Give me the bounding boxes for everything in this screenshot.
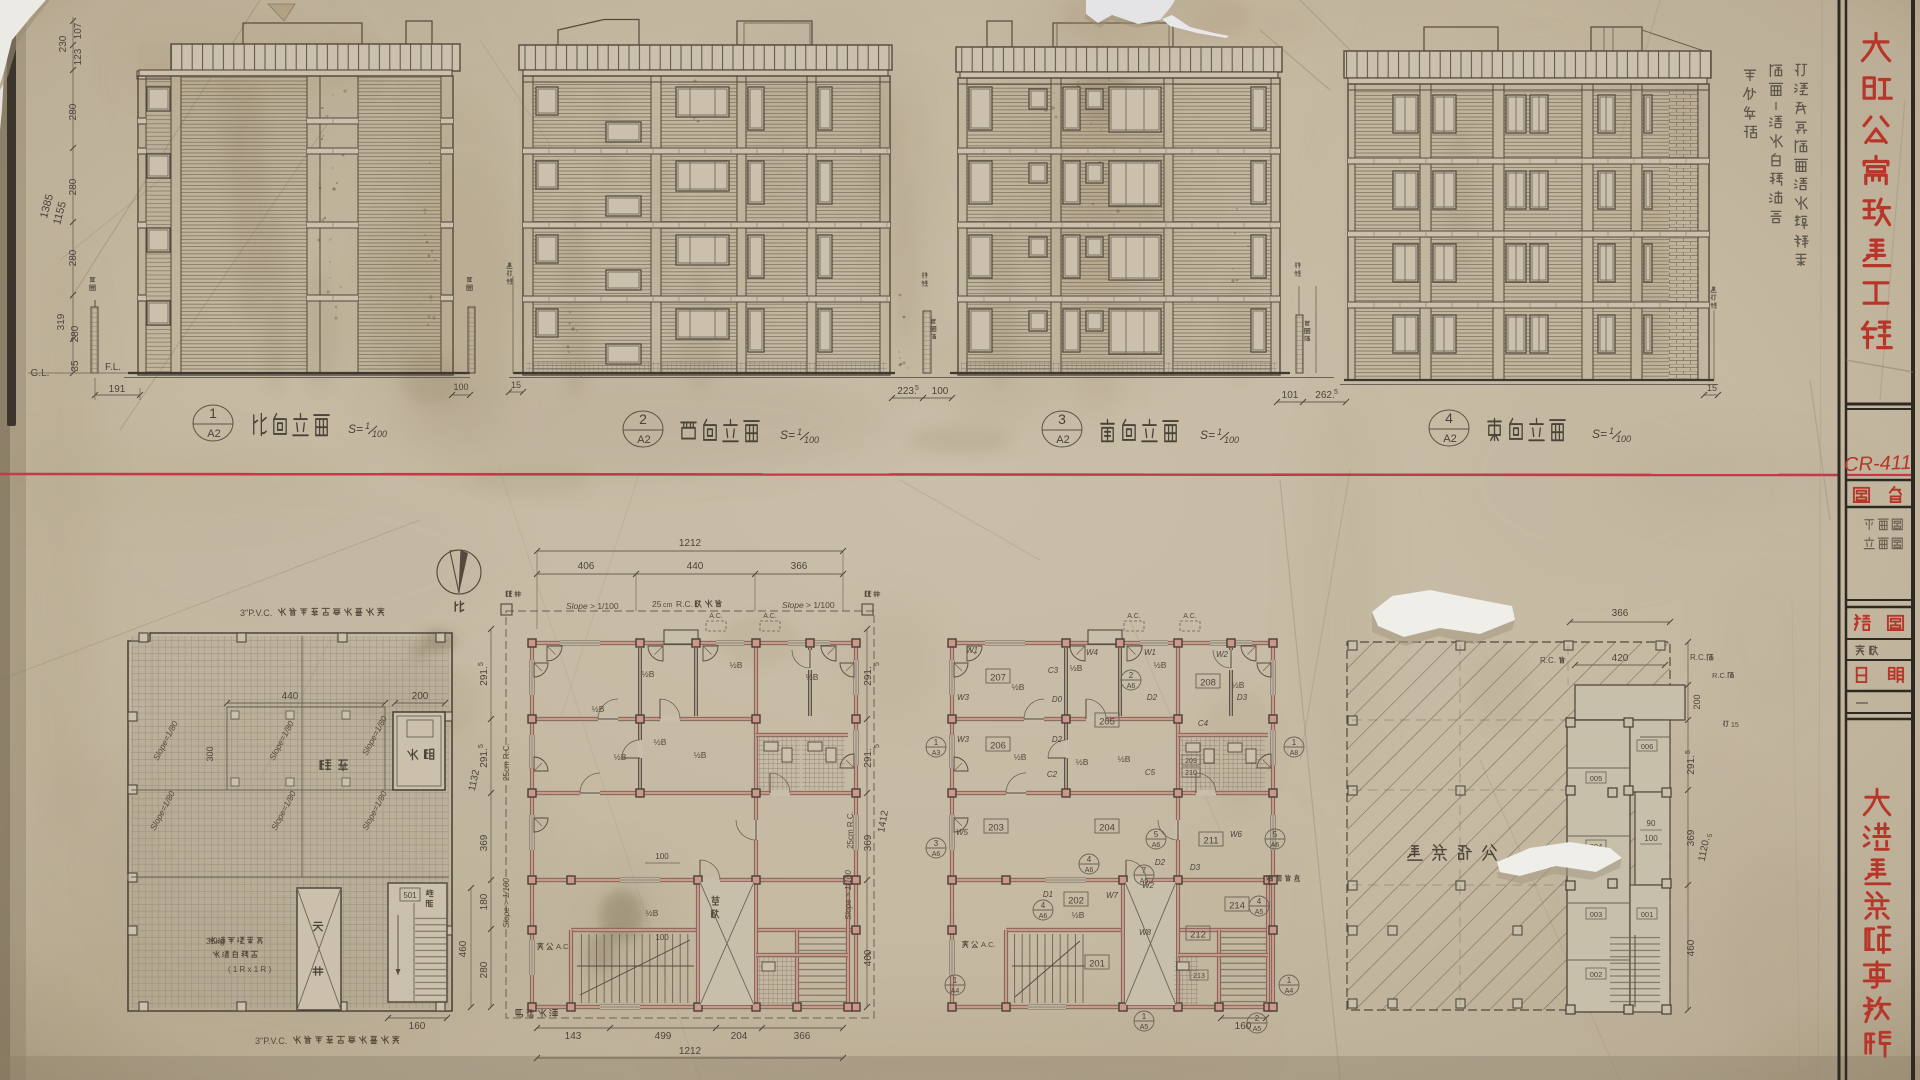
svg-text:204: 204	[1099, 823, 1115, 834]
svg-text:366: 366	[791, 561, 808, 572]
svg-text:W3: W3	[957, 693, 970, 702]
svg-text:100: 100	[655, 933, 669, 942]
svg-text:366: 366	[1612, 608, 1629, 619]
svg-text:1: 1	[1609, 426, 1614, 436]
svg-text:A4: A4	[1285, 988, 1294, 995]
svg-text:5: 5	[478, 744, 485, 748]
svg-text:( 1 R x 1 R ): ( 1 R x 1 R )	[228, 965, 271, 974]
svg-text:499: 499	[655, 1031, 672, 1042]
svg-text:D3: D3	[1190, 863, 1201, 872]
svg-text:W4: W4	[1086, 648, 1099, 657]
svg-text:7: 7	[1142, 866, 1147, 875]
svg-text:180: 180	[479, 893, 490, 910]
svg-text:15: 15	[1731, 722, 1739, 729]
svg-text:100: 100	[1224, 435, 1239, 445]
svg-text:D0: D0	[1052, 695, 1063, 704]
svg-text:3"P.V.C.: 3"P.V.C.	[240, 608, 272, 618]
svg-text:A2: A2	[1056, 434, 1069, 446]
svg-text:420: 420	[1612, 653, 1629, 664]
svg-text:1: 1	[365, 421, 370, 431]
svg-text:230: 230	[58, 35, 69, 52]
svg-text:208: 208	[1200, 678, 1216, 689]
svg-text:A.C.: A.C.	[1183, 613, 1197, 620]
svg-text:280: 280	[68, 249, 79, 266]
svg-text:W8: W8	[1139, 928, 1152, 937]
svg-text:> 1/100: > 1/100	[590, 601, 619, 611]
svg-text:> 1/100: > 1/100	[806, 600, 835, 610]
svg-text:W2: W2	[1216, 650, 1229, 659]
svg-text:440: 440	[282, 691, 299, 702]
svg-text:369: 369	[479, 834, 490, 851]
svg-text:S=: S=	[780, 428, 795, 442]
svg-text:25cm R.C.: 25cm R.C.	[846, 811, 855, 849]
svg-text:291.: 291.	[1686, 755, 1697, 774]
svg-text:CR-411: CR-411	[1844, 452, 1912, 476]
svg-text:½B: ½B	[1154, 660, 1167, 670]
svg-text:369: 369	[1686, 829, 1697, 846]
svg-text:A6: A6	[1271, 842, 1280, 849]
svg-text:280: 280	[68, 178, 79, 195]
svg-text:1: 1	[1217, 427, 1222, 437]
svg-text:205: 205	[1099, 717, 1115, 728]
svg-text:F.L.: F.L.	[105, 362, 121, 373]
svg-text:D2: D2	[1155, 858, 1166, 867]
svg-text:100: 100	[1644, 834, 1658, 843]
svg-text:15: 15	[1707, 383, 1717, 393]
svg-text:201: 201	[1089, 959, 1105, 970]
svg-text:½B: ½B	[642, 669, 655, 679]
svg-text:291.: 291.	[863, 748, 874, 767]
svg-text:Slope: Slope	[566, 601, 588, 611]
svg-text:½B: ½B	[694, 750, 707, 760]
svg-text:369: 369	[863, 834, 874, 851]
svg-text:S=: S=	[348, 422, 363, 436]
svg-text:W1: W1	[966, 646, 978, 655]
svg-text:A4: A4	[951, 988, 960, 995]
svg-text:1212: 1212	[679, 1046, 702, 1057]
svg-text:291.: 291.	[479, 666, 490, 685]
svg-text:W6: W6	[1230, 830, 1243, 839]
svg-text:3"P.V.C.: 3"P.V.C.	[255, 1036, 287, 1046]
svg-text:W3: W3	[957, 735, 970, 744]
svg-text:C4: C4	[1198, 719, 1209, 728]
svg-text:R.C.: R.C.	[1540, 656, 1556, 665]
svg-text:366: 366	[794, 1031, 811, 1042]
svg-text:C5: C5	[1145, 768, 1156, 777]
svg-text:A8: A8	[1290, 750, 1299, 757]
svg-text:207: 207	[990, 673, 1006, 684]
svg-text:213: 213	[1193, 973, 1205, 980]
svg-text:291.: 291.	[863, 666, 874, 685]
svg-text:1: 1	[1142, 1012, 1147, 1021]
svg-text:5: 5	[1685, 750, 1692, 754]
svg-text:4: 4	[1041, 901, 1046, 910]
svg-text:1: 1	[953, 976, 958, 985]
svg-text:A3: A3	[932, 750, 941, 757]
svg-text:Slope > 1/100: Slope > 1/100	[502, 878, 511, 928]
svg-text:A5: A5	[1253, 1026, 1262, 1033]
svg-text:300: 300	[205, 746, 215, 761]
svg-text:2: 2	[639, 411, 647, 427]
svg-text:460: 460	[1686, 939, 1697, 956]
svg-text:1: 1	[1292, 738, 1297, 747]
svg-text:1: 1	[1287, 976, 1292, 985]
svg-text:A.C.: A.C.	[709, 613, 723, 620]
svg-text:160: 160	[409, 1021, 426, 1032]
svg-text:100: 100	[655, 852, 669, 861]
svg-text:cm: cm	[663, 602, 673, 609]
svg-text:4: 4	[1445, 410, 1453, 426]
svg-text:½B: ½B	[806, 672, 819, 682]
svg-text:A6: A6	[1152, 842, 1161, 849]
svg-text:291.: 291.	[479, 748, 490, 767]
svg-text:501: 501	[403, 891, 417, 900]
svg-text:½B: ½B	[654, 737, 667, 747]
svg-text:5: 5	[874, 662, 881, 666]
svg-text:1: 1	[934, 738, 939, 747]
svg-text:A6: A6	[1039, 913, 1048, 920]
svg-text:½B: ½B	[1072, 910, 1085, 920]
svg-text:½B: ½B	[730, 660, 743, 670]
svg-text:A2: A2	[637, 434, 650, 446]
svg-text:460: 460	[458, 940, 469, 957]
svg-text:Slope > 1/100: Slope > 1/100	[844, 870, 853, 920]
svg-text:5: 5	[915, 385, 919, 392]
svg-text:D2: D2	[1147, 693, 1158, 702]
svg-text:202: 202	[1068, 896, 1084, 907]
svg-text:1: 1	[209, 405, 217, 421]
svg-text:206: 206	[990, 741, 1006, 752]
svg-text:D1: D1	[1043, 890, 1053, 899]
svg-text:191: 191	[109, 384, 126, 395]
svg-text:A6: A6	[932, 851, 941, 858]
svg-text:R.C.: R.C.	[676, 599, 693, 609]
svg-text:280: 280	[479, 961, 490, 978]
svg-text:100: 100	[804, 435, 819, 445]
svg-text:A6: A6	[1127, 683, 1136, 690]
svg-text:½B: ½B	[1070, 663, 1083, 673]
svg-text:1: 1	[797, 427, 802, 437]
svg-text:209: 209	[1185, 758, 1197, 765]
svg-text:R.C.: R.C.	[1690, 653, 1706, 662]
svg-text:4: 4	[1257, 897, 1262, 906]
svg-text:A6: A6	[1085, 867, 1094, 874]
svg-text:35: 35	[70, 360, 81, 372]
svg-text:460: 460	[863, 949, 874, 966]
svg-text:003: 003	[1590, 910, 1603, 919]
svg-text:D3: D3	[1237, 693, 1248, 702]
svg-text:A.C.: A.C.	[981, 940, 996, 949]
svg-text:C3: C3	[1048, 666, 1059, 675]
svg-text:S=: S=	[1200, 428, 1215, 442]
svg-text:A.C.: A.C.	[556, 942, 571, 951]
svg-text:R.C.: R.C.	[1712, 671, 1727, 680]
svg-text:223.: 223.	[897, 386, 916, 397]
svg-text:214: 214	[1229, 901, 1245, 912]
svg-text:A.C.: A.C.	[1127, 613, 1141, 620]
svg-text:2: 2	[1129, 671, 1134, 680]
svg-text:100: 100	[372, 429, 387, 439]
svg-text:262.: 262.	[1315, 390, 1334, 401]
svg-text:½B: ½B	[1014, 752, 1027, 762]
svg-text:200: 200	[1692, 694, 1702, 709]
svg-text:C2: C2	[1047, 770, 1058, 779]
svg-text:Slope: Slope	[782, 600, 804, 610]
svg-text:1212: 1212	[679, 538, 702, 549]
svg-text:½B: ½B	[1012, 682, 1025, 692]
svg-text:100: 100	[1616, 434, 1631, 444]
svg-text:5: 5	[1334, 389, 1338, 396]
svg-text:½B: ½B	[1076, 757, 1089, 767]
svg-text:W5: W5	[956, 828, 969, 837]
svg-text:210: 210	[1185, 770, 1197, 777]
svg-text:107: 107	[73, 22, 84, 39]
svg-text:A.C.: A.C.	[763, 613, 777, 620]
svg-text:25: 25	[652, 599, 662, 609]
svg-text:5: 5	[874, 744, 881, 748]
svg-text:15: 15	[511, 380, 521, 390]
svg-text:002: 002	[1590, 970, 1603, 979]
svg-text:406: 406	[578, 561, 595, 572]
svg-text:5: 5	[1154, 830, 1159, 839]
svg-text:100: 100	[932, 386, 949, 397]
svg-text:A2: A2	[207, 428, 220, 440]
svg-text:5: 5	[478, 662, 485, 666]
svg-text:D2: D2	[1052, 735, 1063, 744]
svg-text:2: 2	[1255, 1014, 1260, 1023]
svg-text:5: 5	[1273, 830, 1278, 839]
svg-text:S=: S=	[1592, 427, 1607, 441]
svg-text:½B: ½B	[646, 908, 659, 918]
svg-text:G.L.: G.L.	[31, 368, 50, 379]
svg-text:001: 001	[1641, 910, 1654, 919]
svg-text:A6: A6	[1140, 878, 1149, 885]
svg-text:90: 90	[1647, 819, 1656, 828]
svg-text:160: 160	[1235, 1021, 1252, 1032]
svg-text:440: 440	[687, 561, 704, 572]
svg-text:A2: A2	[1443, 433, 1456, 445]
svg-text:005: 005	[1590, 774, 1603, 783]
svg-text:W1: W1	[1144, 648, 1156, 657]
svg-text:212: 212	[1190, 930, 1206, 941]
svg-text:4: 4	[1087, 855, 1092, 864]
svg-text:143: 143	[565, 1031, 582, 1042]
svg-text:204: 204	[731, 1031, 748, 1042]
svg-text:A5: A5	[1255, 909, 1264, 916]
svg-text:3: 3	[1058, 411, 1066, 427]
svg-text:203: 203	[988, 823, 1004, 834]
svg-text:319: 319	[56, 313, 67, 330]
svg-text:101: 101	[1282, 390, 1299, 401]
svg-text:006: 006	[1641, 742, 1654, 751]
svg-text:123: 123	[73, 48, 84, 65]
svg-text:100: 100	[453, 382, 468, 392]
svg-text:280: 280	[68, 103, 79, 120]
svg-text:211: 211	[1203, 836, 1218, 847]
svg-text:25cm R.C.: 25cm R.C.	[502, 743, 511, 781]
svg-text:½B: ½B	[1118, 754, 1131, 764]
svg-text:½B: ½B	[592, 704, 605, 714]
svg-text:3: 3	[934, 839, 939, 848]
svg-text:35kg: 35kg	[206, 936, 225, 946]
svg-text:280: 280	[70, 325, 81, 342]
svg-text:½B: ½B	[1232, 680, 1245, 690]
svg-text:½B: ½B	[614, 752, 627, 762]
svg-text:200: 200	[412, 691, 429, 702]
svg-text:A5: A5	[1140, 1024, 1149, 1031]
svg-text:W7: W7	[1106, 891, 1119, 900]
